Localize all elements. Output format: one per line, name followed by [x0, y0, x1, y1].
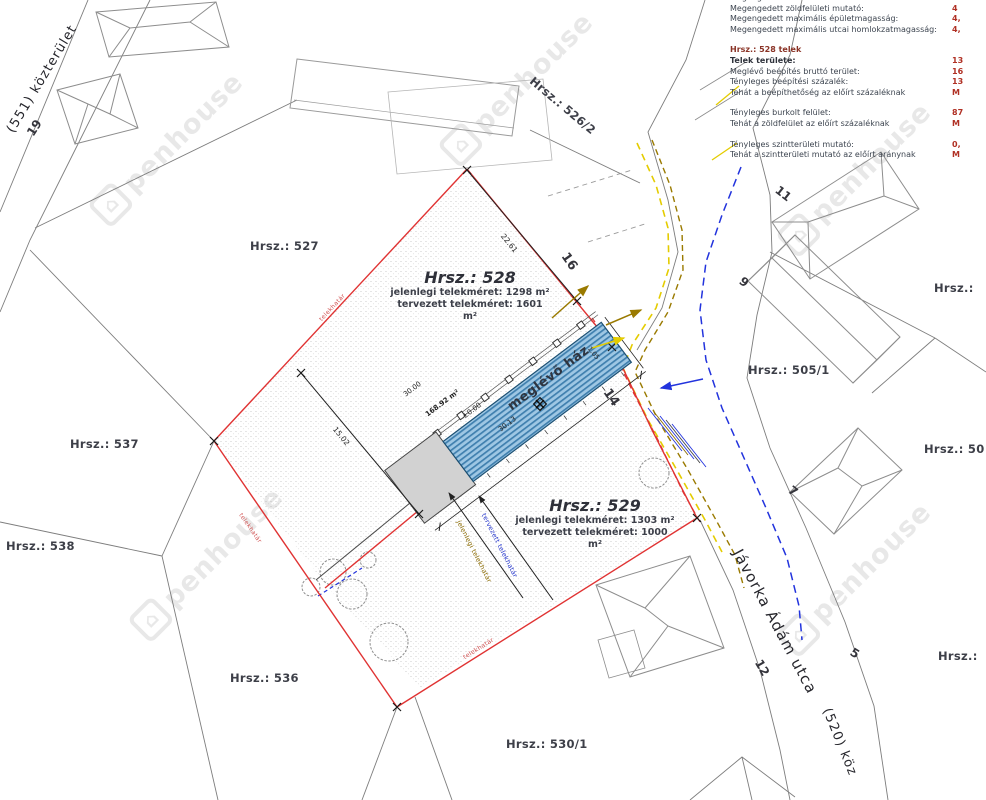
zoning-row: Meglévő beépítés bruttó terület:16	[730, 67, 986, 78]
zoning-label: Telek területe:	[730, 56, 796, 65]
zoning-row: Tehát a zöldfelület az előírt százalékna…	[730, 119, 986, 130]
zoning-label: Megengedett zöldfelületi mutató:	[730, 4, 864, 13]
zoning-row: Megengedett zöldfelületi mutató:4	[730, 4, 986, 15]
parcel-label-538: Hrsz.: 538	[6, 539, 75, 553]
zoning-value: 13	[952, 77, 963, 88]
zoning-row: Megengedett maximális épületmagasság:4,	[730, 14, 986, 25]
plot-529-planned-size: tervezett telekméret: 1000 m²	[515, 527, 675, 551]
zoning-label: Tényleges beépítési százalék:	[730, 77, 848, 86]
parcel-label-505-1: Hrsz.: 505/1	[748, 363, 830, 377]
zoning-value: 16	[952, 67, 963, 78]
zoning-plot-title: Hrsz.: 528 telek	[730, 45, 801, 54]
zoning-row: Tehát a szintterületi mutató az előírt a…	[730, 150, 986, 161]
zoning-value: 13	[952, 56, 963, 67]
parcel-label-537: Hrsz.: 537	[70, 437, 139, 451]
zoning-label: Megengedett szintterületi mutató:	[730, 0, 868, 2]
parcel-label-530-1: Hrsz.: 530/1	[506, 737, 588, 751]
zoning-row: Tehát a beépíthetőség az előírt százalék…	[730, 88, 986, 99]
zoning-value: 4,	[952, 14, 961, 25]
zoning-row: Tényleges szintterületi mutató:0,	[730, 140, 986, 151]
parcel-label-clipped: Hrsz.: 50	[924, 442, 985, 456]
blue-arrow	[661, 379, 703, 388]
zoning-label: Tényleges burkolt felület:	[730, 108, 831, 117]
plot-529-info: Hrsz.: 529 jelenlegi telekméret: 1303 m²…	[515, 496, 675, 551]
zoning-label: Tehát a zöldfelület az előírt százalékna…	[730, 119, 889, 128]
zoning-info-panel: Megengedett szintterületi mutató: Megeng…	[730, 0, 986, 161]
zoning-label: Megengedett maximális utcai homlokzatmag…	[730, 25, 937, 34]
zoning-label: Tényleges szintterületi mutató:	[730, 140, 854, 149]
zoning-value: 4,	[952, 25, 961, 36]
plot-529-title: Hrsz.: 529	[515, 496, 675, 515]
plot-529-current-size: jelenlegi telekméret: 1303 m²	[515, 515, 675, 527]
parcel-label-clipped: Hrsz.:	[938, 649, 978, 663]
site-plan-page: ⌂ penhouse ⌂ penhouse ⌂ penhouse ⌂ penho…	[0, 0, 986, 800]
plot-528-info: Hrsz.: 528 jelenlegi telekméret: 1298 m²…	[390, 268, 550, 323]
parcel-label-527: Hrsz.: 527	[250, 239, 319, 253]
zoning-row: Tényleges beépítési százalék:13	[730, 77, 986, 88]
zoning-value: M	[952, 119, 960, 130]
zoning-value: 0,	[952, 140, 961, 151]
zoning-value: 4	[952, 4, 958, 15]
zoning-value: M	[952, 88, 960, 99]
zoning-label: Tehát a szintterületi mutató az előírt a…	[730, 150, 916, 159]
plot-528-current-size: jelenlegi telekméret: 1298 m²	[390, 287, 550, 299]
zoning-row: Hrsz.: 528 telek	[730, 45, 986, 56]
plot-528-planned-size: tervezett telekméret: 1601 m²	[390, 299, 550, 323]
zoning-label: Meglévő beépítés bruttó terület:	[730, 67, 860, 76]
zoning-value: 87	[952, 108, 963, 119]
zoning-row: Megengedett maximális utcai homlokzatmag…	[730, 25, 986, 36]
zoning-label: Megengedett maximális épületmagasság:	[730, 14, 898, 23]
parcel-label-clipped: Hrsz.:	[934, 281, 974, 295]
zoning-row: Telek területe:13	[730, 56, 986, 67]
parcel-label-536: Hrsz.: 536	[230, 671, 299, 685]
zoning-label: Tehát a beépíthetőség az előírt százalék…	[730, 88, 905, 97]
plot-528-title: Hrsz.: 528	[390, 268, 550, 287]
zoning-value: M	[952, 150, 960, 161]
zoning-row: Tényleges burkolt felület:87	[730, 108, 986, 119]
